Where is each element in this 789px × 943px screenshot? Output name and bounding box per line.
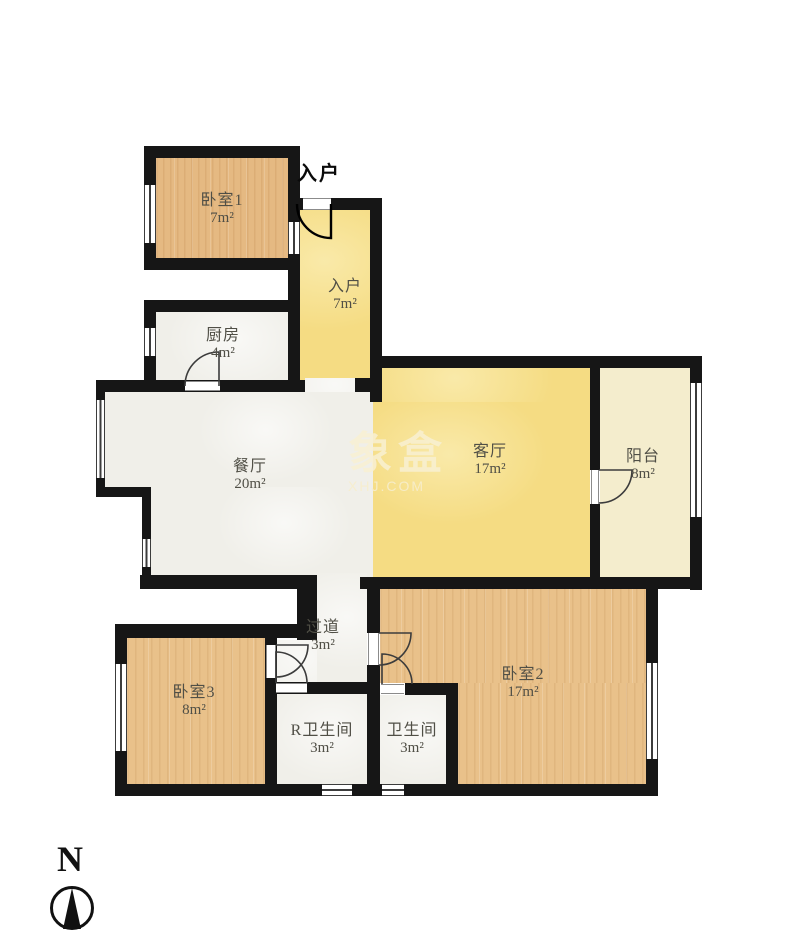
door-threshold xyxy=(381,684,404,694)
wall-segment xyxy=(370,356,702,368)
door-threshold xyxy=(266,645,276,678)
window xyxy=(322,784,352,796)
wall-segment xyxy=(96,487,151,497)
window xyxy=(288,222,300,254)
wall-segment xyxy=(367,589,380,633)
wall-segment xyxy=(590,368,600,470)
room-label-bathroom1: R卫生间 3m² xyxy=(291,722,354,758)
window xyxy=(115,664,127,751)
compass-north-label: N xyxy=(57,838,83,880)
wall-segment xyxy=(144,300,300,312)
door-threshold xyxy=(368,633,379,665)
room-label-corridor: 过道 3m² xyxy=(306,619,340,655)
room-label-bedroom3: 卧室3 8m² xyxy=(172,684,215,720)
room-floor-living-main xyxy=(373,402,590,577)
room-floor-dining-lower xyxy=(151,487,373,577)
window xyxy=(690,383,702,517)
room-floor-bedroom2 xyxy=(458,683,646,784)
wall-segment xyxy=(144,146,300,158)
door-threshold xyxy=(276,683,307,693)
wall-segment xyxy=(140,575,317,589)
wall-segment xyxy=(115,624,302,638)
room-floor-living-upper xyxy=(382,368,590,402)
room-label-living: 客厅 17m² xyxy=(473,443,507,479)
wall-segment xyxy=(446,683,458,784)
room-label-balcony: 阳台 8m² xyxy=(626,448,660,484)
window xyxy=(144,328,156,356)
door-threshold xyxy=(185,381,220,391)
wall-segment xyxy=(360,577,702,589)
window xyxy=(144,185,156,243)
room-label-dining: 餐厅 20m² xyxy=(233,458,267,494)
entrance-label: 入户 xyxy=(297,157,341,186)
room-label-bathroom2: 卫生间 3m² xyxy=(386,722,437,758)
room-label-kitchen: 厨房 4m² xyxy=(206,327,240,363)
window xyxy=(96,400,105,478)
wall-segment xyxy=(367,665,380,796)
room-label-bedroom2: 卧室2 17m² xyxy=(501,666,544,702)
door-threshold xyxy=(303,198,331,210)
compass-needle-icon xyxy=(63,888,81,929)
wall-segment xyxy=(370,198,382,402)
wall-segment xyxy=(144,258,300,270)
window xyxy=(646,663,658,759)
window xyxy=(382,784,404,796)
window xyxy=(142,539,151,567)
room-label-bedroom1: 卧室1 7m² xyxy=(200,192,243,228)
door-threshold xyxy=(591,470,599,504)
wall-segment xyxy=(590,504,600,577)
wall-segment xyxy=(355,378,370,392)
room-label-entry: 入户 7m² xyxy=(328,278,362,314)
floor-plan: 象盒 XHJ.COM 卧室1 7m² 入户 7m² 厨房 4m² 餐厅 20m²… xyxy=(0,0,789,943)
